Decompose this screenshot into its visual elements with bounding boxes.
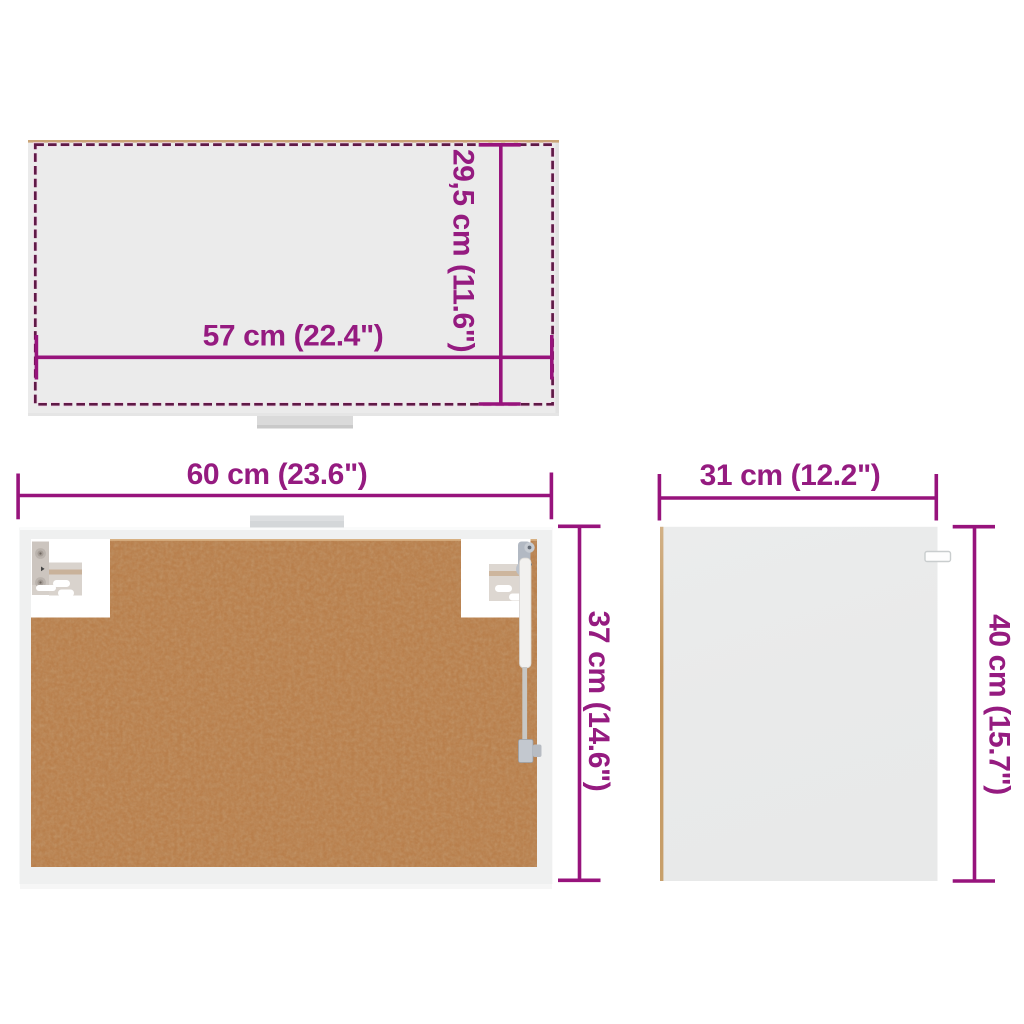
svg-text:29,5 cm (11.6"): 29,5 cm (11.6") <box>447 149 480 352</box>
svg-text:40 cm (15.7"): 40 cm (15.7") <box>983 614 1016 795</box>
svg-text:31 cm (12.2"): 31 cm (12.2") <box>700 459 881 492</box>
svg-text:57 cm (22.4"): 57 cm (22.4") <box>203 320 384 353</box>
svg-text:60 cm (23.6"): 60 cm (23.6") <box>187 458 368 491</box>
svg-text:37 cm (14.6"): 37 cm (14.6") <box>582 611 615 792</box>
